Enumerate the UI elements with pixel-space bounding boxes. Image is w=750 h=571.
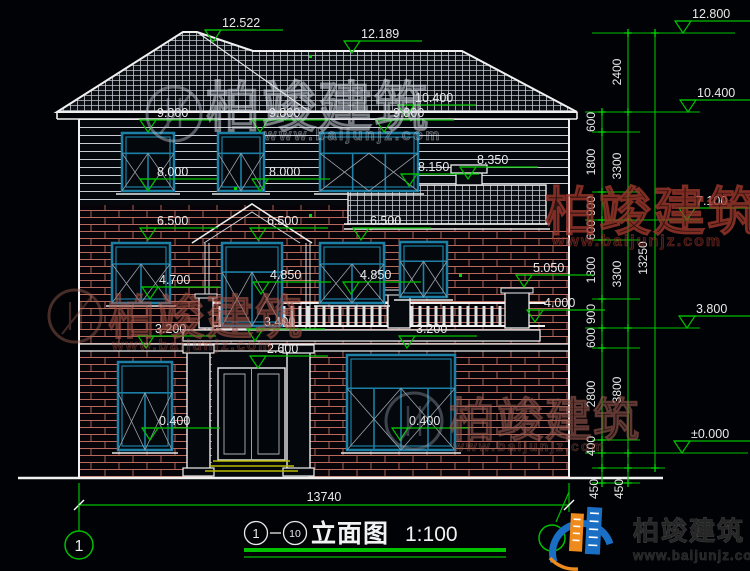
- elevation-value: 3.200: [416, 322, 447, 336]
- dim-tick: [598, 344, 606, 352]
- watermark-url: www.baijunjz.com: [551, 233, 722, 250]
- porch-column: [187, 352, 210, 470]
- watermark-url: www.baijunjz.com: [452, 438, 606, 454]
- elevation-value: 6.500: [267, 214, 298, 228]
- dim-tick: [598, 324, 606, 332]
- chain-dim-text: 450: [612, 479, 626, 499]
- chain-dim-text: 450: [587, 479, 601, 499]
- window: [394, 242, 453, 300]
- watermark-right: 柏竣建筑 www.baijunjz.com: [545, 184, 750, 250]
- dim-tick: [624, 108, 632, 116]
- elevation-value: 4.850: [360, 268, 391, 282]
- balcony-pillar-cap: [501, 288, 533, 293]
- cad-elevation-drawing: 6001800900600180090060028004004502400330…: [0, 0, 750, 571]
- elevation-value: 12.522: [222, 16, 260, 30]
- elevation-value: 4.700: [159, 273, 190, 287]
- elevation-marker: 10.400: [680, 86, 750, 112]
- dim-tick: [651, 464, 659, 472]
- dim-tick: [624, 29, 632, 37]
- dim-tick: [651, 29, 659, 37]
- bottom-dimension: 13740: [74, 483, 574, 512]
- dim-tick: [598, 128, 606, 136]
- dim-tick: [598, 108, 606, 116]
- logo-brand: 柏竣建筑: [633, 516, 745, 546]
- elevation-marker: 3.800: [679, 302, 750, 328]
- grid-bubble-number: 1: [75, 538, 84, 555]
- window: [112, 362, 178, 453]
- elevation-marker: ±0.000: [674, 427, 750, 453]
- elevation-value: 8.000: [157, 165, 188, 179]
- chain-dim-text: 2400: [610, 58, 624, 85]
- chain-dim-text: 1800: [584, 256, 598, 283]
- title-bubble-end-number: 10: [289, 528, 301, 540]
- dim-tick: [598, 464, 606, 472]
- chain-dim-text: 600: [584, 112, 598, 132]
- elevation-triangle-icon: [680, 100, 696, 112]
- elevation-value: 10.400: [697, 86, 735, 100]
- elevation-value: 6.500: [370, 214, 401, 228]
- elevation-value: 3.800: [696, 302, 727, 316]
- elevation-value: 8.150: [418, 160, 449, 174]
- elevation-value: 8.000: [269, 165, 300, 179]
- elevation-value: 8.350: [477, 153, 508, 167]
- elevation-triangle-icon: [675, 21, 691, 33]
- drawing-scale: 1:100: [405, 523, 458, 546]
- chain-dim-text: 3300: [610, 260, 624, 287]
- title-bubble-start-number: 1: [252, 526, 259, 541]
- dim-tick: [624, 464, 632, 472]
- elevation-triangle-icon: [679, 316, 695, 328]
- elevation-marker: 12.800: [675, 7, 750, 33]
- drawing-canvas: 6001800900600180090060028004004502400330…: [0, 0, 750, 571]
- porch-column-base: [183, 468, 214, 476]
- chain-dim-text: 900: [584, 304, 598, 324]
- elevation-value: 4.850: [270, 268, 301, 282]
- elevation-marker: 12.189: [344, 27, 422, 53]
- elevation-value: 5.050: [533, 261, 564, 275]
- elevation-value: 12.800: [692, 7, 730, 21]
- elevation-value: 0.400: [159, 414, 190, 428]
- logo-url: www.baijunjz.com: [632, 548, 750, 563]
- chain-dim-text: 3300: [610, 152, 624, 179]
- watermark-url: www.baijunjz.com: [111, 337, 273, 354]
- overall-width-dim: 13740: [307, 490, 342, 504]
- drawing-title: 立面图: [311, 519, 389, 548]
- corporate-logo: 柏竣建筑 www.baijunjz.com: [550, 506, 750, 569]
- dim-tick: [598, 295, 606, 303]
- watermark-url: www.baijunjz.com: [263, 127, 442, 144]
- elevation-triangle-icon: [674, 441, 690, 453]
- dim-tick: [624, 324, 632, 332]
- chain-dim-text: 600: [584, 328, 598, 348]
- porch-column: [287, 352, 310, 470]
- grid-bubble-left: 1: [65, 505, 93, 559]
- elevation-value: 4.000: [544, 296, 575, 310]
- balcony-pillar: [505, 290, 529, 328]
- title-block: 1 10 立面图 1:100: [244, 519, 506, 557]
- elevation-value: 6.500: [157, 214, 188, 228]
- porch-column-base: [283, 468, 314, 476]
- elevation-value: ±0.000: [691, 427, 729, 441]
- logo-building-icon: [569, 506, 602, 555]
- chain-dim-text: 1800: [584, 148, 598, 175]
- dim-tick: [624, 449, 632, 457]
- elevation-value: 12.189: [361, 27, 399, 41]
- window: [212, 133, 270, 194]
